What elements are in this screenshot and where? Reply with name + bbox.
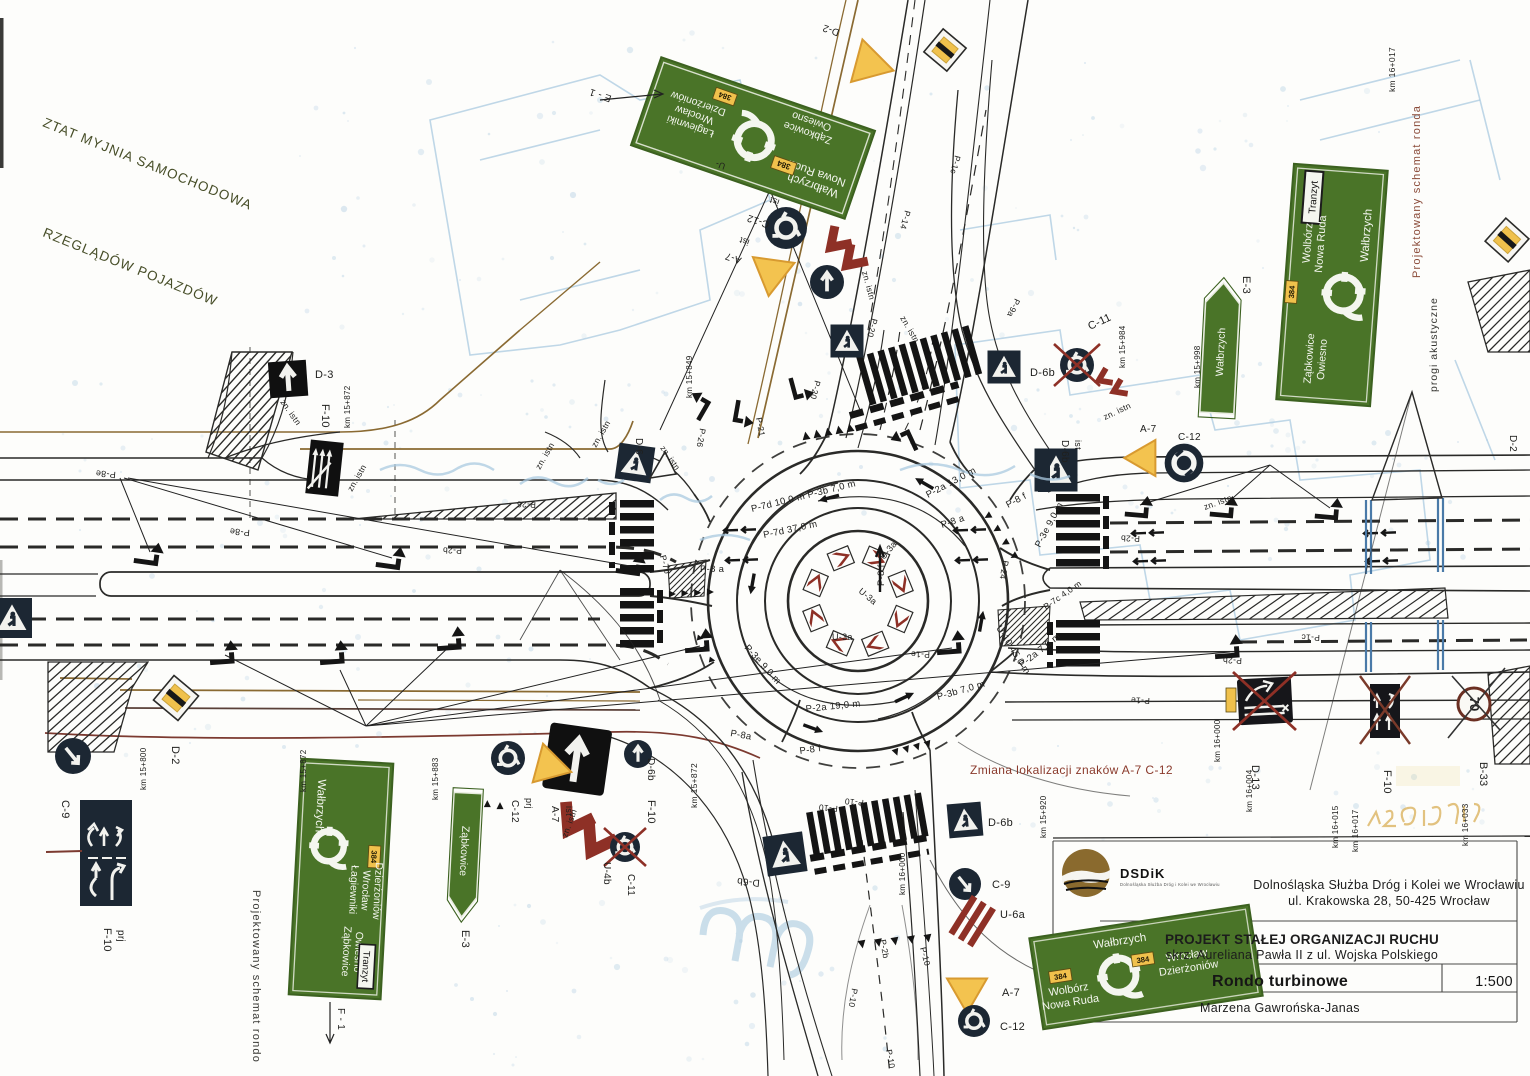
- svg-text:km 15+872: km 15+872: [343, 385, 352, 428]
- svg-text:Dolnośląska Służba Dróg i Kole: Dolnośląska Służba Dróg i Kolei we Wrocł…: [1120, 882, 1220, 887]
- svg-text:C-12: C-12: [1178, 432, 1201, 443]
- svg-text:Rondo turbinowe: Rondo turbinowe: [1212, 973, 1348, 990]
- svg-text:km 16+000: km 16+000: [1213, 719, 1222, 762]
- svg-text:P-1e: P-1e: [1131, 695, 1150, 706]
- svg-text:D-6b: D-6b: [645, 758, 656, 781]
- svg-text:E-3: E-3: [1240, 276, 1252, 294]
- svg-text:B-33: B-33: [1477, 762, 1489, 786]
- svg-text:P-2b: P-2b: [443, 545, 462, 556]
- svg-text:F - 1: F - 1: [335, 1008, 346, 1030]
- svg-text:km 15+883: km 15+883: [431, 757, 440, 800]
- svg-text:E-3: E-3: [459, 930, 471, 948]
- svg-text:km 15+998: km 15+998: [1193, 345, 1202, 388]
- svg-text:P-8 a: P-8 a: [700, 564, 725, 575]
- svg-text:ul. Krakowska 28, 50-425 Wrocł: ul. Krakowska 28, 50-425 Wrocław: [1288, 894, 1490, 908]
- svg-text:F-10: F-10: [645, 800, 657, 824]
- svg-text:km 15+872: km 15+872: [689, 763, 699, 808]
- svg-text:Zmiana lokalizacji znaków A-7: Zmiana lokalizacji znaków A-7 C-12: [970, 763, 1173, 777]
- svg-text:km 15+984: km 15+984: [1118, 325, 1127, 368]
- svg-text:km 15+800: km 15+800: [139, 747, 148, 790]
- svg-text:D-6b: D-6b: [988, 817, 1013, 829]
- svg-text:P-10: P-10: [844, 796, 864, 808]
- svg-text:C-9: C-9: [59, 800, 71, 819]
- svg-text:Wałbrzych: Wałbrzych: [1214, 327, 1229, 376]
- svg-text:prj: prj: [115, 930, 126, 942]
- svg-text:km 16+015: km 16+015: [1331, 805, 1340, 848]
- svg-text:P-1c: P-1c: [1301, 632, 1320, 643]
- svg-text:progi akustyczne: progi akustyczne: [1428, 297, 1440, 392]
- svg-text:D-6b: D-6b: [736, 875, 760, 888]
- svg-text:F-10: F-10: [1381, 770, 1393, 794]
- svg-text:U-4b: U-4b: [601, 862, 612, 885]
- svg-text:1:500: 1:500: [1475, 974, 1513, 990]
- svg-text:ist: ist: [564, 806, 574, 816]
- svg-text:C-12: C-12: [509, 800, 520, 823]
- svg-text:C-11: C-11: [625, 874, 636, 896]
- svg-text:Dolnośląska Służba Dróg i Kole: Dolnośląska Służba Dróg i Kolei we Wrocł…: [1253, 878, 1524, 892]
- svg-text:P-26: P-26: [517, 499, 536, 510]
- svg-text:Marzena Gawrońska-Janas: Marzena Gawrońska-Janas: [1200, 1001, 1360, 1015]
- svg-text:Projektowany schemat ronda: Projektowany schemat ronda: [1411, 105, 1423, 278]
- svg-text:U-6a: U-6a: [1000, 909, 1026, 921]
- svg-text:D-3: D-3: [315, 369, 334, 381]
- svg-text:P-10: P-10: [818, 802, 838, 814]
- svg-text:D-6b: D-6b: [1059, 440, 1070, 463]
- svg-text:C-12: C-12: [1000, 1021, 1025, 1033]
- svg-text:U-3a: U-3a: [832, 632, 853, 642]
- svg-text:D-2: D-2: [169, 746, 181, 765]
- svg-text:prj: prj: [524, 798, 534, 809]
- svg-text:km 16+004: km 16+004: [1245, 769, 1254, 812]
- svg-text:km 15+872: km 15+872: [299, 749, 308, 792]
- svg-text:P-2b: P-2b: [1223, 655, 1242, 666]
- svg-text:km 16+000: km 16+000: [898, 852, 907, 895]
- svg-text:PROJEKT STAŁEJ ORGANIZACJI RUC: PROJEKT STAŁEJ ORGANIZACJI RUCHU: [1165, 932, 1439, 947]
- svg-text:km 15+920: km 15+920: [1039, 795, 1048, 838]
- svg-text:D-2: D-2: [1507, 435, 1518, 452]
- svg-text:A-7: A-7: [1140, 424, 1157, 435]
- svg-text:P-8 f: P-8 f: [876, 564, 887, 586]
- svg-text:skrz. Aureliana Pawła II z ul.: skrz. Aureliana Pawła II z ul. Wojska Po…: [1166, 948, 1438, 962]
- svg-text:DSDiK: DSDiK: [1120, 866, 1165, 881]
- svg-text:F-10: F-10: [101, 928, 113, 952]
- svg-text:Wrocław: Wrocław: [358, 870, 372, 911]
- svg-text:384: 384: [1287, 285, 1297, 299]
- svg-text:Projektowany schemat rondo: Projektowany schemat rondo: [250, 890, 262, 1063]
- svg-text:P-2b: P-2b: [1121, 533, 1140, 544]
- svg-text:km 15+849: km 15+849: [685, 355, 694, 398]
- svg-text:km 16+017: km 16+017: [1351, 809, 1360, 852]
- svg-text:ist: ist: [1073, 440, 1083, 450]
- svg-text:F-10: F-10: [319, 404, 331, 428]
- svg-text:D-6b: D-6b: [1030, 367, 1055, 379]
- svg-text:A-7: A-7: [1002, 987, 1020, 999]
- svg-text:C-9: C-9: [992, 879, 1011, 891]
- svg-text:D-6: D-6: [633, 438, 644, 455]
- svg-text:P-8e: P-8e: [229, 526, 250, 538]
- svg-text:km 16+017: km 16+017: [1387, 47, 1397, 92]
- svg-text:A-7: A-7: [549, 806, 560, 823]
- svg-text:Tranzyt: Tranzyt: [359, 951, 372, 983]
- svg-text:P-8e: P-8e: [95, 468, 116, 480]
- svg-text:P-1e: P-1e: [911, 649, 930, 660]
- svg-text:km 16+033: km 16+033: [1461, 803, 1470, 846]
